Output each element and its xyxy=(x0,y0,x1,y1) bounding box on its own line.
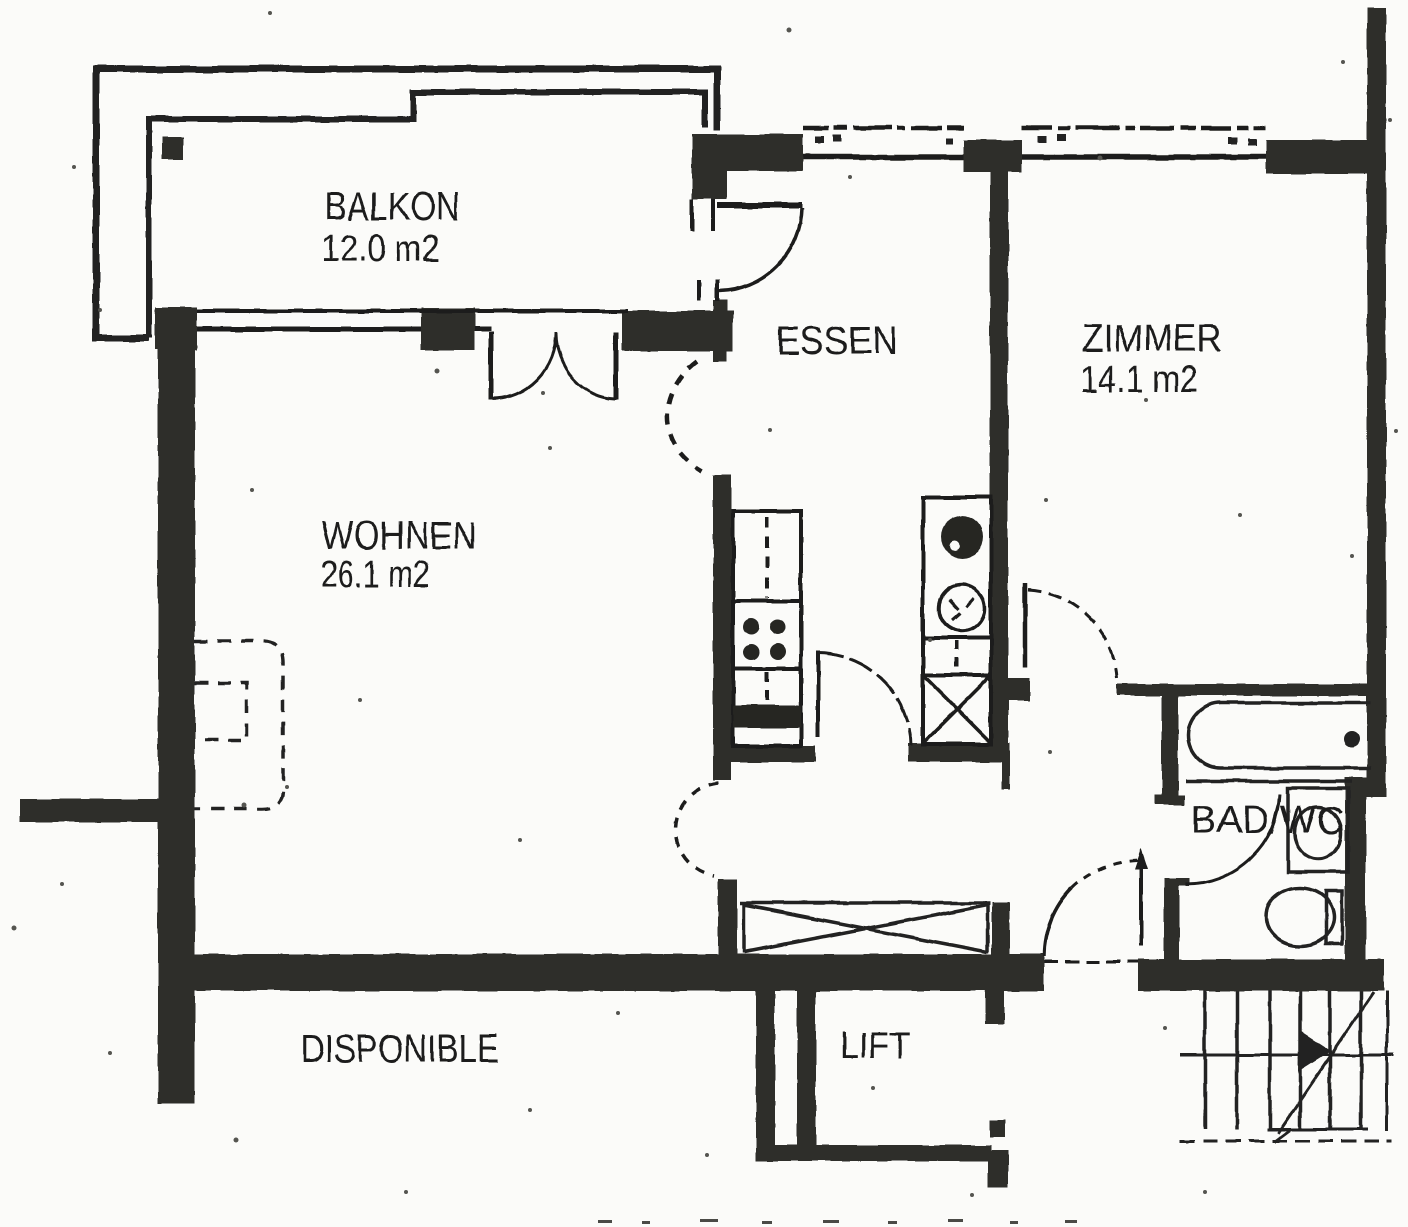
svg-text:26.1 m2: 26.1 m2 xyxy=(321,554,430,596)
svg-text:DISPONIBLE: DISPONIBLE xyxy=(301,1027,499,1071)
svg-text:12.0 m2: 12.0 m2 xyxy=(322,228,440,270)
svg-text:ZIMMER: ZIMMER xyxy=(1082,318,1222,360)
svg-text:WOHNEN: WOHNEN xyxy=(321,514,477,558)
svg-text:BAD/WC: BAD/WC xyxy=(1191,799,1344,842)
svg-text:ESSEN: ESSEN xyxy=(776,319,898,363)
svg-text:14.1 m2: 14.1 m2 xyxy=(1080,359,1198,401)
svg-text:LIFT: LIFT xyxy=(840,1025,910,1066)
svg-text:BALKON: BALKON xyxy=(325,185,460,229)
